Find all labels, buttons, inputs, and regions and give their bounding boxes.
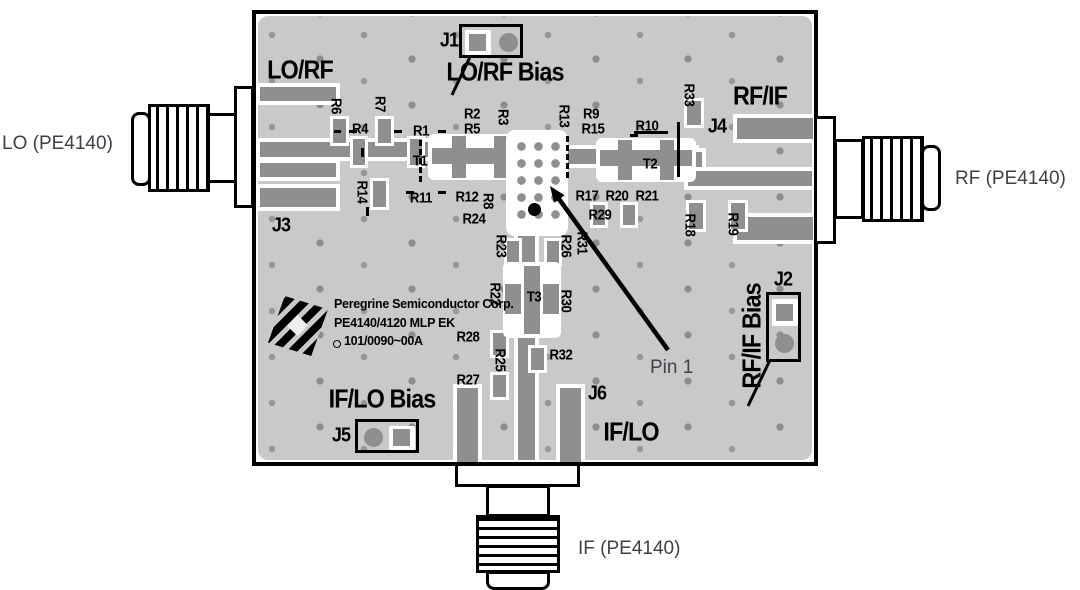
jumper-label-j2: J2 xyxy=(774,269,792,292)
jumper-label-j1: J1 xyxy=(440,30,458,53)
silkscreen-tick xyxy=(438,130,446,133)
refdes-r26: R26 xyxy=(558,235,575,258)
refdes-t3: T3 xyxy=(527,289,542,306)
pad-r14 xyxy=(370,178,389,210)
refdes-r15: R15 xyxy=(582,121,605,138)
refdes-r24: R24 xyxy=(463,211,486,228)
jumper-label-j4: J4 xyxy=(708,116,726,139)
refdes-r23: R23 xyxy=(493,235,510,258)
silkscreen-tick xyxy=(366,207,369,216)
refdes-r30: R30 xyxy=(558,290,575,313)
annotation-rf-connector: RF (PE4140) xyxy=(955,168,1066,190)
refdes-r25: R25 xyxy=(492,349,509,372)
ground-bar-right-bottom xyxy=(737,217,813,240)
ground-bar-left-bottom xyxy=(260,188,336,207)
ground-bar-bottom-left xyxy=(457,388,478,462)
refdes-r1: R1 xyxy=(413,123,429,140)
silkscreen-tick xyxy=(394,130,402,133)
refdes-r6: R6 xyxy=(328,98,345,114)
pcb-diagram: LO/RF RF/IF IF/LO LO/RF Bias IF/LO Bias … xyxy=(0,0,1080,590)
sma-lo-body xyxy=(207,113,237,183)
ground-bar-left-top xyxy=(260,87,336,101)
refdes-t1: T1 xyxy=(413,153,428,170)
refdes-r32: R32 xyxy=(550,347,573,364)
pad-r32 xyxy=(528,345,547,373)
ground-bar-right-top xyxy=(737,118,813,139)
refdes-r3: R3 xyxy=(495,109,512,125)
annotation-lo-connector: LO (PE4140) xyxy=(2,133,113,155)
refdes-r27: R27 xyxy=(457,372,480,389)
silkscreen-tick xyxy=(361,148,364,157)
silkscreen-tick xyxy=(438,191,446,194)
annotation-pin1: Pin 1 xyxy=(650,357,693,379)
logo-docnum-line: 101/0090~00A xyxy=(344,334,423,348)
silkscreen-tick xyxy=(334,130,341,133)
refdes-r21: R21 xyxy=(636,188,659,205)
refdes-r19: R19 xyxy=(725,213,742,236)
pad-r7 xyxy=(375,116,394,146)
silkscreen-outline xyxy=(677,122,680,177)
logo-small-circle xyxy=(333,340,341,348)
j2-square-pad xyxy=(776,304,793,321)
refdes-r8: R8 xyxy=(480,193,497,209)
logo-company-line: Peregrine Semiconductor Corp. xyxy=(334,297,514,311)
refdes-r18: R18 xyxy=(682,214,699,237)
label-lo-rf-bias: LO/RF Bias xyxy=(446,57,563,88)
jumper-label-j3: J3 xyxy=(272,215,290,238)
port-label-lo-rf: LO/RF xyxy=(267,55,333,86)
annotation-if-connector: IF (PE4140) xyxy=(578,538,680,560)
j5-round-pad xyxy=(364,428,383,447)
pad-r20 xyxy=(620,202,638,228)
trace-rf-segment xyxy=(688,171,812,186)
silkscreen-dashed-line xyxy=(566,136,569,178)
j2-round-pad xyxy=(775,334,794,353)
logo-part-line: PE4140/4120 MLP EK xyxy=(334,316,455,330)
refdes-t2: T2 xyxy=(643,156,658,173)
refdes-r4: R4 xyxy=(352,121,368,138)
refdes-r10: R10 xyxy=(636,118,659,135)
refdes-r33: R33 xyxy=(681,84,698,107)
refdes-r20: R20 xyxy=(606,188,629,205)
sma-lo-threads xyxy=(148,104,210,192)
ground-bar-left-mid xyxy=(260,163,336,177)
label-rf-if-bias: RF/IF Bias xyxy=(737,283,768,388)
refdes-r31: R31 xyxy=(574,232,591,255)
j1-round-pad xyxy=(499,33,518,52)
port-label-rf-if: RF/IF xyxy=(733,81,787,112)
pin1-marker-dot xyxy=(528,203,541,216)
refdes-r14: R14 xyxy=(354,181,371,204)
jumper-j1-header xyxy=(459,24,523,58)
port-label-if-lo: IF/LO xyxy=(603,417,658,448)
sma-if-tip xyxy=(486,571,550,590)
sma-rf-threads xyxy=(862,136,924,222)
refdes-r17: R17 xyxy=(576,188,599,205)
refdes-r13: R13 xyxy=(556,105,573,128)
pad-r27 xyxy=(490,372,509,400)
logo-center-hole xyxy=(287,315,308,336)
jumper-label-j5: J5 xyxy=(332,425,350,448)
jumper-j5-header xyxy=(355,419,419,453)
sma-rf-body xyxy=(834,139,864,219)
sma-if-flange xyxy=(455,463,580,487)
ground-bar-bottom-right xyxy=(560,388,581,462)
label-if-lo-bias: IF/LO Bias xyxy=(329,384,436,415)
refdes-r29: R29 xyxy=(589,207,612,224)
sma-rf-flange xyxy=(814,116,836,244)
refdes-r28: R28 xyxy=(457,329,480,346)
refdes-r5: R5 xyxy=(464,121,480,138)
refdes-r7: R7 xyxy=(372,96,389,112)
pad-r4 xyxy=(350,136,368,168)
sma-if-body xyxy=(486,485,550,517)
sma-rf-endcap xyxy=(921,145,941,211)
jumper-label-j6: J6 xyxy=(588,383,606,406)
j5-square-pad xyxy=(393,429,410,446)
j1-square-pad xyxy=(469,34,486,51)
refdes-r12: R12 xyxy=(456,189,479,206)
sma-if-threads xyxy=(476,515,560,573)
jumper-j2-header xyxy=(766,292,801,362)
refdes-r11: R11 xyxy=(410,190,432,207)
sma-lo-flange xyxy=(234,86,254,208)
